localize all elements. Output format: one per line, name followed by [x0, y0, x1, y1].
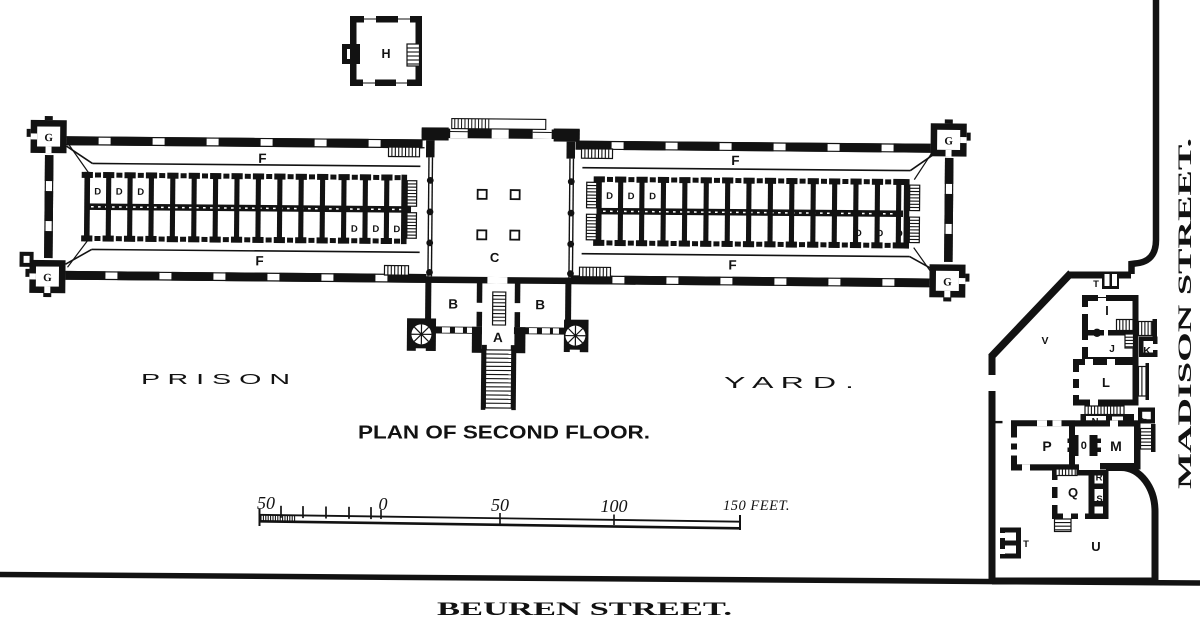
svg-text:S: S — [1096, 494, 1102, 505]
svg-text:H: H — [381, 47, 390, 61]
svg-text:0: 0 — [379, 494, 388, 514]
svg-text:R: R — [1096, 473, 1103, 484]
svg-text:0: 0 — [1081, 440, 1087, 452]
svg-text:D: D — [137, 187, 144, 198]
svg-text:V: V — [1041, 335, 1048, 347]
svg-text:50: 50 — [257, 493, 275, 513]
svg-text:U: U — [1091, 539, 1100, 554]
svg-text:T: T — [1023, 539, 1029, 550]
svg-text:G: G — [44, 132, 53, 144]
svg-text:G: G — [43, 272, 52, 284]
svg-text:D: D — [876, 228, 883, 239]
svg-text:D: D — [372, 224, 379, 235]
svg-text:PLAN OF SECOND FLOOR.: PLAN OF SECOND FLOOR. — [358, 423, 650, 443]
svg-text:BEUREN STREET.: BEUREN STREET. — [437, 599, 732, 620]
svg-text:D: D — [628, 191, 635, 202]
svg-text:D: D — [606, 191, 613, 202]
svg-text:150 FEET.: 150 FEET. — [723, 498, 790, 514]
svg-text:D: D — [351, 224, 358, 235]
svg-text:F: F — [258, 151, 266, 166]
svg-text:Y A R D .: Y A R D . — [724, 375, 854, 392]
svg-text:T: T — [1093, 279, 1099, 290]
svg-text:D: D — [393, 224, 400, 235]
svg-text:M: M — [1110, 438, 1122, 454]
svg-text:D: D — [649, 191, 656, 202]
svg-text:G: G — [944, 135, 953, 147]
svg-text:F: F — [728, 257, 736, 272]
svg-text:F: F — [731, 153, 739, 168]
svg-text:B: B — [535, 297, 545, 312]
svg-text:L: L — [1102, 375, 1110, 390]
svg-text:C: C — [490, 250, 500, 265]
svg-text:MADISON STREET.: MADISON STREET. — [1175, 138, 1196, 489]
svg-text:J: J — [1109, 344, 1115, 355]
svg-text:Q: Q — [1068, 485, 1078, 500]
svg-text:D: D — [855, 228, 862, 239]
svg-text:A: A — [493, 330, 503, 345]
svg-text:50: 50 — [491, 495, 509, 515]
svg-text:D: D — [896, 228, 903, 239]
svg-text:K: K — [1143, 345, 1151, 357]
svg-text:100: 100 — [601, 496, 628, 516]
svg-text:P R I S O N: P R I S O N — [141, 371, 290, 388]
svg-text:F: F — [255, 253, 263, 268]
svg-text:G: G — [943, 276, 952, 288]
svg-text:P: P — [1042, 438, 1051, 454]
svg-text:B: B — [448, 297, 458, 312]
svg-text:D: D — [94, 186, 101, 197]
svg-text:D: D — [116, 187, 123, 198]
svg-text:I: I — [1105, 304, 1108, 318]
